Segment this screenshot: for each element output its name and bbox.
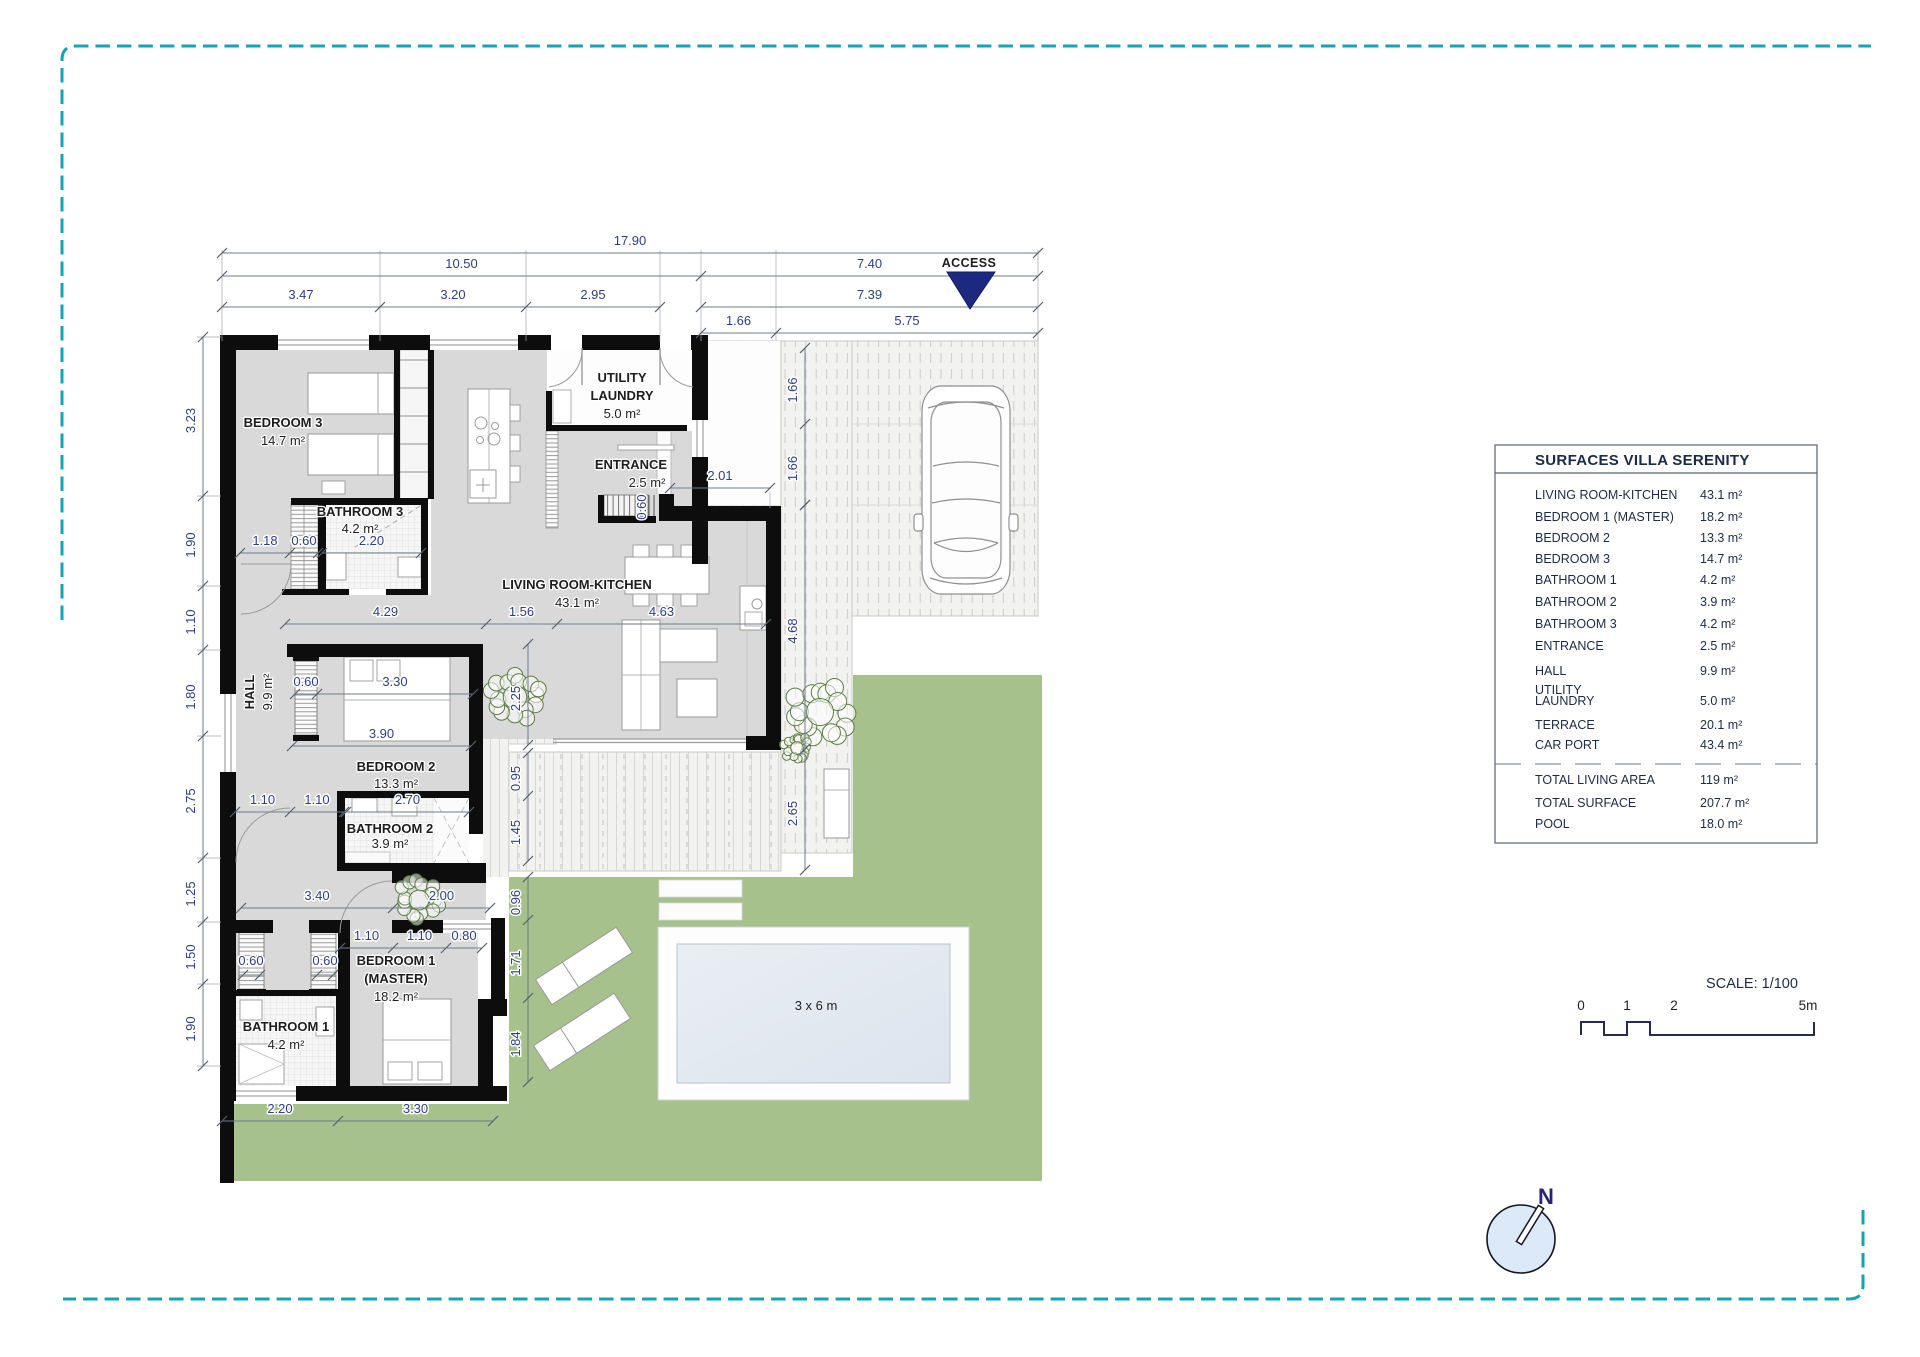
svg-text:(MASTER): (MASTER): [364, 971, 428, 986]
svg-text:BATHROOM 1: BATHROOM 1: [1535, 573, 1617, 587]
svg-text:2.01: 2.01: [707, 468, 732, 483]
svg-text:5m: 5m: [1799, 998, 1818, 1013]
svg-text:2.65: 2.65: [785, 801, 800, 826]
svg-text:2.95: 2.95: [580, 287, 605, 302]
svg-text:0.60: 0.60: [293, 674, 318, 689]
svg-text:ENTRANCE: ENTRANCE: [595, 457, 668, 472]
svg-text:5.75: 5.75: [894, 313, 919, 328]
svg-text:BEDROOM 3: BEDROOM 3: [244, 415, 323, 430]
svg-text:1.66: 1.66: [726, 313, 751, 328]
svg-text:0.60: 0.60: [291, 533, 316, 548]
svg-text:SURFACES VILLA SERENITY: SURFACES VILLA SERENITY: [1535, 452, 1750, 469]
svg-text:2.5 m²: 2.5 m²: [629, 475, 667, 490]
svg-text:0.95: 0.95: [508, 766, 523, 791]
svg-text:2.25: 2.25: [508, 686, 523, 711]
svg-text:UTILITY: UTILITY: [597, 370, 646, 385]
svg-text:LAUNDRY: LAUNDRY: [590, 388, 653, 403]
svg-text:18.2 m²: 18.2 m²: [1700, 510, 1742, 524]
svg-text:1.10: 1.10: [407, 928, 432, 943]
svg-text:13.3 m²: 13.3 m²: [374, 776, 419, 791]
svg-text:3.30: 3.30: [403, 1101, 428, 1116]
svg-text:N: N: [1538, 1184, 1554, 1209]
svg-text:1.45: 1.45: [508, 820, 523, 845]
svg-text:14.7 m²: 14.7 m²: [261, 433, 306, 448]
svg-text:1: 1: [1623, 998, 1631, 1013]
svg-text:1.10: 1.10: [354, 928, 379, 943]
svg-text:1.66: 1.66: [785, 377, 800, 402]
svg-text:1.50: 1.50: [183, 944, 198, 969]
svg-text:4.2 m²: 4.2 m²: [1700, 617, 1735, 631]
svg-text:BATHROOM 3: BATHROOM 3: [317, 504, 403, 519]
svg-text:1.10: 1.10: [304, 792, 329, 807]
svg-text:3 x 6 m: 3 x 6 m: [795, 998, 838, 1013]
svg-text:ENTRANCE: ENTRANCE: [1535, 639, 1604, 653]
svg-text:3.20: 3.20: [440, 287, 465, 302]
svg-text:1.56: 1.56: [509, 604, 534, 619]
svg-text:18.0 m²: 18.0 m²: [1700, 817, 1742, 831]
svg-text:0.80: 0.80: [451, 928, 476, 943]
svg-text:43.1 m²: 43.1 m²: [1700, 488, 1742, 502]
svg-text:BATHROOM 2: BATHROOM 2: [347, 821, 433, 836]
svg-text:4.63: 4.63: [649, 604, 674, 619]
svg-text:20.1 m²: 20.1 m²: [1700, 718, 1742, 732]
svg-text:13.3 m²: 13.3 m²: [1700, 531, 1742, 545]
svg-text:3.23: 3.23: [183, 408, 198, 433]
svg-text:2.70: 2.70: [395, 792, 420, 807]
svg-text:BEDROOM 2: BEDROOM 2: [1535, 531, 1610, 545]
svg-text:LIVING ROOM-KITCHEN: LIVING ROOM-KITCHEN: [502, 577, 652, 592]
svg-text:1.25: 1.25: [183, 881, 198, 906]
svg-text:0: 0: [1577, 998, 1585, 1013]
svg-text:LAUNDRY: LAUNDRY: [1535, 694, 1595, 708]
svg-text:43.4 m²: 43.4 m²: [1700, 738, 1742, 752]
svg-text:TOTAL LIVING AREA: TOTAL LIVING AREA: [1535, 773, 1656, 787]
svg-text:3.9 m²: 3.9 m²: [372, 836, 410, 851]
svg-text:18.2 m²: 18.2 m²: [374, 989, 419, 1004]
svg-text:1.90: 1.90: [183, 1016, 198, 1041]
svg-text:BATHROOM 2: BATHROOM 2: [1535, 595, 1617, 609]
svg-text:1.66: 1.66: [785, 456, 800, 481]
svg-text:BEDROOM 3: BEDROOM 3: [1535, 552, 1610, 566]
svg-text:1.71: 1.71: [508, 950, 523, 975]
svg-text:4.2 m²: 4.2 m²: [1700, 573, 1735, 587]
svg-text:HALL: HALL: [242, 675, 257, 710]
svg-text:9.9 m²: 9.9 m²: [1700, 664, 1735, 678]
svg-text:4.29: 4.29: [373, 604, 398, 619]
svg-text:CAR PORT: CAR PORT: [1535, 738, 1600, 752]
svg-text:3.47: 3.47: [288, 287, 313, 302]
svg-text:HALL: HALL: [1535, 664, 1566, 678]
svg-text:9.9 m²: 9.9 m²: [260, 673, 275, 711]
svg-text:43.1 m²: 43.1 m²: [555, 595, 600, 610]
svg-text:2.00: 2.00: [429, 888, 454, 903]
svg-text:3.30: 3.30: [382, 674, 407, 689]
svg-text:POOL: POOL: [1535, 817, 1570, 831]
svg-text:2.5 m²: 2.5 m²: [1700, 639, 1735, 653]
svg-text:4.68: 4.68: [785, 618, 800, 643]
svg-text:0.96: 0.96: [508, 890, 523, 915]
svg-text:2.20: 2.20: [267, 1101, 292, 1116]
svg-text:3.9 m²: 3.9 m²: [1700, 595, 1735, 609]
svg-text:10.50: 10.50: [445, 256, 478, 271]
svg-text:4.2 m²: 4.2 m²: [342, 521, 380, 536]
svg-text:17.90: 17.90: [614, 233, 647, 248]
svg-text:SCALE: 1/100: SCALE: 1/100: [1706, 976, 1798, 992]
svg-text:3.40: 3.40: [304, 888, 329, 903]
svg-text:1.80: 1.80: [183, 684, 198, 709]
svg-text:BEDROOM 1: BEDROOM 1: [357, 953, 436, 968]
svg-text:0.60: 0.60: [238, 953, 263, 968]
svg-text:1.90: 1.90: [183, 532, 198, 557]
svg-text:5.0 m²: 5.0 m²: [1700, 694, 1735, 708]
svg-text:5.0 m²: 5.0 m²: [604, 406, 642, 421]
svg-text:0.60: 0.60: [634, 494, 649, 519]
svg-text:207.7 m²: 207.7 m²: [1700, 796, 1749, 810]
svg-text:7.39: 7.39: [857, 287, 882, 302]
svg-text:TERRACE: TERRACE: [1535, 718, 1595, 732]
svg-text:1.84: 1.84: [508, 1031, 523, 1056]
svg-text:119 m²: 119 m²: [1700, 773, 1738, 787]
svg-text:1.10: 1.10: [183, 609, 198, 634]
svg-text:BATHROOM 3: BATHROOM 3: [1535, 617, 1617, 631]
svg-text:1.10: 1.10: [250, 792, 275, 807]
svg-text:4.2 m²: 4.2 m²: [268, 1037, 306, 1052]
svg-text:2: 2: [1670, 998, 1678, 1013]
svg-text:14.7 m²: 14.7 m²: [1700, 552, 1742, 566]
svg-text:1.18: 1.18: [252, 533, 277, 548]
svg-text:7.40: 7.40: [857, 256, 882, 271]
svg-text:BATHROOM 1: BATHROOM 1: [243, 1019, 329, 1034]
svg-text:0.60: 0.60: [312, 953, 337, 968]
svg-text:3.90: 3.90: [369, 726, 394, 741]
svg-text:ACCESS: ACCESS: [942, 256, 997, 270]
svg-text:TOTAL SURFACE: TOTAL SURFACE: [1535, 796, 1636, 810]
svg-text:2.75: 2.75: [183, 788, 198, 813]
svg-text:BEDROOM 2: BEDROOM 2: [357, 759, 436, 774]
svg-text:BEDROOM 1 (MASTER): BEDROOM 1 (MASTER): [1535, 510, 1674, 524]
svg-text:LIVING ROOM-KITCHEN: LIVING ROOM-KITCHEN: [1535, 488, 1677, 502]
